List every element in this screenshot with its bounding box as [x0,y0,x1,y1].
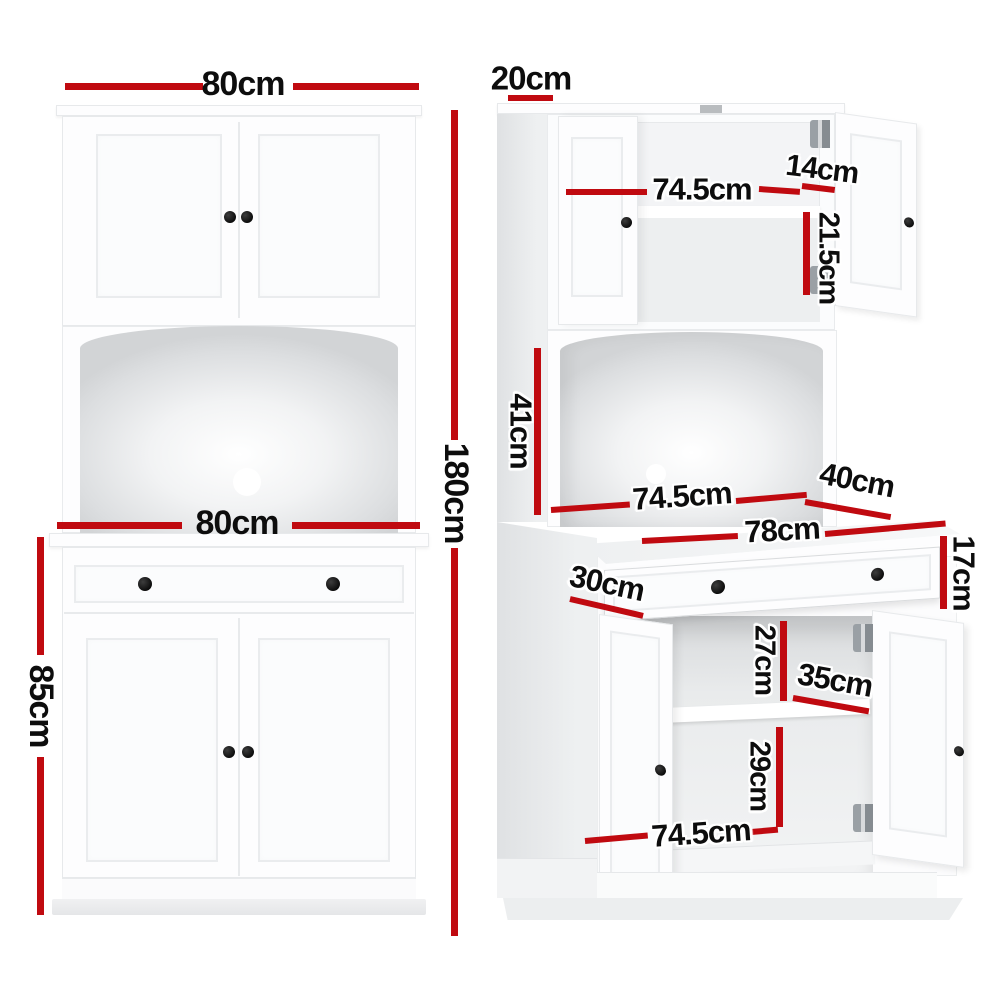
open-hutch-left-door [558,116,638,325]
open-front-plinth [597,872,937,898]
dim-label-drawer-height: 17cm [949,535,980,610]
open-hutch-right-door-knob [904,217,914,228]
dim-line-overall-height-top [451,110,458,440]
open-hutch-right-door [835,112,917,318]
open-hutch-side-panel [497,114,547,330]
dim-line-cabinet-height-bottom [37,757,44,915]
open-lower-hinge-bottom [853,804,877,832]
dim-line-hutch-opening-width-left [566,189,647,195]
dim-label-hutch-opening-height: 21.5cm [814,212,843,304]
dim-line-cabinet-width-right [292,522,420,529]
front-hutch-cornice [56,105,422,116]
front-hutch-left-knob [224,211,236,223]
dim-label-hutch-width: 80cm [202,67,285,101]
dim-label-overall-height: 180cm [439,443,473,544]
front-hutch-door-seam [238,122,240,318]
open-lower-right-door-panel [889,631,947,837]
front-cable-hole [233,468,261,496]
front-lower-divider [64,612,414,614]
dim-label-shelf-space-bottom: 29cm [745,741,774,811]
front-lower-right-door-panel [258,638,390,862]
open-hutch-left-door-knob [621,217,632,228]
dim-line-hutch-opening-height [803,212,810,295]
open-base [503,898,963,920]
open-hutch-shelf [637,206,820,218]
dim-line-cabinet-width-left [57,522,182,529]
dim-line-cabinet-height-top [37,537,44,655]
dim-label-hutch-opening-width: 74.5cm [652,174,751,205]
open-hutch-hinge-top [810,120,834,148]
open-lower-hinge-top [853,624,877,652]
front-niche-interior [80,326,398,533]
front-drawer-right-knob [326,577,340,591]
open-hutch-top-slab [497,103,845,114]
dim-label-niche-width: 74.5cm [631,477,732,515]
front-base [52,899,426,915]
dim-label-shelf-space-top: 27cm [750,625,779,695]
front-lower-door-seam [238,618,240,876]
front-hutch-right-door-panel [258,134,380,298]
dim-line-hutch-width-left [65,83,203,90]
open-side-plinth [497,858,597,898]
open-hutch-left-door-panel [571,137,623,297]
dim-line-overall-height-bottom [451,548,458,936]
front-plinth [62,878,416,899]
open-lower-right-door [872,610,964,868]
dim-label-drawer-width: 78cm [744,513,821,548]
open-lower-right-door-knob [954,746,964,757]
dim-label-cabinet-width: 80cm [196,506,279,540]
dim-label-hutch-depth: 20cm [491,62,571,95]
open-lower-left-door [599,614,673,912]
dim-line-shelf-space-bottom [776,727,783,827]
product-dimension-diagram: 80cm 180cm 80cm 85cm 20cm 74.5cm 14cm 21… [0,0,1000,1000]
open-hutch-top-slot [700,105,722,113]
dim-label-cabinet-opening-width: 74.5cm [650,814,751,852]
front-lower-left-knob [223,746,235,758]
open-hutch-interior-lower [637,218,820,322]
front-lower-left-door-panel [86,638,218,862]
front-hutch-left-door-panel [96,134,222,298]
dim-line-hutch-depth [508,95,553,101]
front-drawer-left-knob [138,577,152,591]
dim-label-cabinet-height: 85cm [24,665,58,748]
front-drawer-front [74,565,404,603]
dim-label-niche-height: 41cm [506,393,537,468]
dim-line-hutch-width-right [293,83,419,90]
front-lower-right-knob [242,746,254,758]
dim-line-shelf-space-top [780,621,787,701]
front-hutch-right-knob [241,211,253,223]
